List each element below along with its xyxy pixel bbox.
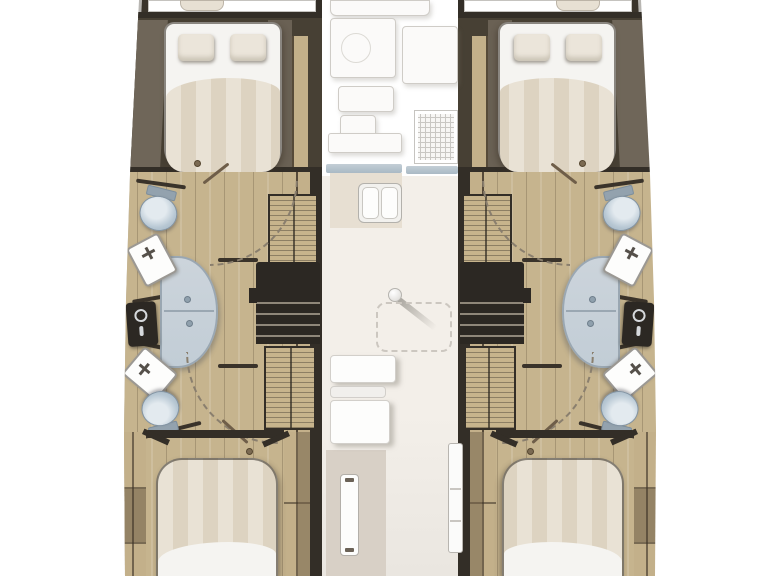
pillow bbox=[178, 34, 214, 61]
door-knob-dot bbox=[527, 448, 534, 455]
counter-edge bbox=[326, 164, 402, 173]
shower-head-icon bbox=[134, 309, 148, 323]
shower-door-knob bbox=[587, 320, 594, 327]
foredeck-cushion bbox=[556, 0, 600, 11]
aft-cabin-bulkhead bbox=[496, 430, 632, 438]
galley-cabinet bbox=[338, 86, 394, 112]
forward-cabin bbox=[458, 12, 658, 172]
aft-side-planks bbox=[634, 432, 658, 576]
foredeck-panel bbox=[148, 0, 316, 12]
forward-berth bbox=[498, 22, 616, 174]
cabin-wood-trim bbox=[472, 36, 488, 167]
door-hinge bbox=[345, 478, 354, 482]
worktop-ring bbox=[341, 33, 371, 63]
floorplan-canvas bbox=[0, 0, 768, 576]
sliding-door-panel bbox=[448, 443, 463, 553]
step-treads bbox=[256, 302, 320, 344]
galley-counter bbox=[328, 133, 402, 153]
shower-door-knob bbox=[589, 296, 596, 303]
aft-side-planks bbox=[470, 432, 496, 576]
hull-port-interior bbox=[122, 0, 322, 576]
step-notch bbox=[523, 288, 531, 303]
duvet bbox=[166, 78, 280, 172]
saloon-seat bbox=[330, 355, 396, 383]
step-treads bbox=[460, 302, 524, 344]
cabin-wood-trim bbox=[292, 36, 308, 167]
pillow bbox=[230, 34, 266, 61]
foredeck-cushion bbox=[180, 0, 224, 11]
pillow bbox=[566, 34, 602, 61]
sink-basin bbox=[362, 187, 379, 219]
forward-cabin bbox=[122, 12, 322, 172]
cabin-side-panel-left bbox=[126, 20, 168, 167]
aft-cabin-bulkhead bbox=[148, 430, 284, 438]
bed-sheet bbox=[504, 542, 622, 576]
galley-worktop bbox=[330, 18, 396, 78]
shower-column bbox=[126, 301, 159, 347]
aft-side-planks bbox=[284, 432, 310, 576]
hull-starboard bbox=[458, 0, 658, 576]
saloon-seat bbox=[330, 386, 386, 398]
cabin-side-panel-left bbox=[612, 20, 654, 167]
shower-head-icon bbox=[632, 309, 646, 323]
bed-sheet bbox=[158, 542, 276, 576]
sink-basin bbox=[381, 187, 398, 219]
shower-door-knob bbox=[186, 320, 193, 327]
galley-forward-cabinet bbox=[330, 0, 430, 16]
shower-hose-icon bbox=[636, 326, 641, 336]
panel-divider bbox=[450, 488, 461, 490]
door-knob-dot bbox=[194, 160, 201, 167]
aft-berth bbox=[502, 458, 624, 576]
galley-cabinet bbox=[402, 26, 458, 84]
mast-post bbox=[388, 288, 402, 302]
forward-berth bbox=[164, 22, 282, 174]
double-sink bbox=[358, 183, 402, 223]
shower-divider bbox=[164, 310, 214, 312]
door-knob-dot bbox=[246, 448, 253, 455]
saloon-bridgedeck bbox=[322, 0, 458, 576]
counter-edge bbox=[406, 166, 458, 174]
companionway-steps bbox=[256, 262, 320, 344]
aft-berth bbox=[156, 458, 278, 576]
step-notch bbox=[249, 288, 257, 303]
wardrobe-divider bbox=[488, 348, 490, 428]
foredeck-panel bbox=[464, 0, 632, 12]
companionway-steps bbox=[460, 262, 524, 344]
companionway-door bbox=[340, 474, 359, 556]
door-knob-dot bbox=[579, 160, 586, 167]
wardrobe-divider bbox=[290, 348, 292, 428]
duvet bbox=[500, 78, 614, 172]
shower-door-knob bbox=[184, 296, 191, 303]
door-hinge bbox=[345, 548, 354, 552]
saloon-seat bbox=[330, 400, 390, 444]
shower-divider bbox=[566, 310, 616, 312]
hull-port bbox=[122, 0, 322, 576]
shower-column bbox=[622, 301, 655, 347]
panel-divider bbox=[450, 520, 461, 522]
shower-hose-icon bbox=[139, 326, 144, 336]
stowed-table-outline bbox=[376, 302, 452, 352]
stove-top-grid bbox=[414, 110, 458, 164]
aft-side-planks bbox=[122, 432, 146, 576]
hull-starboard-interior bbox=[458, 0, 658, 576]
pillow bbox=[514, 34, 550, 61]
